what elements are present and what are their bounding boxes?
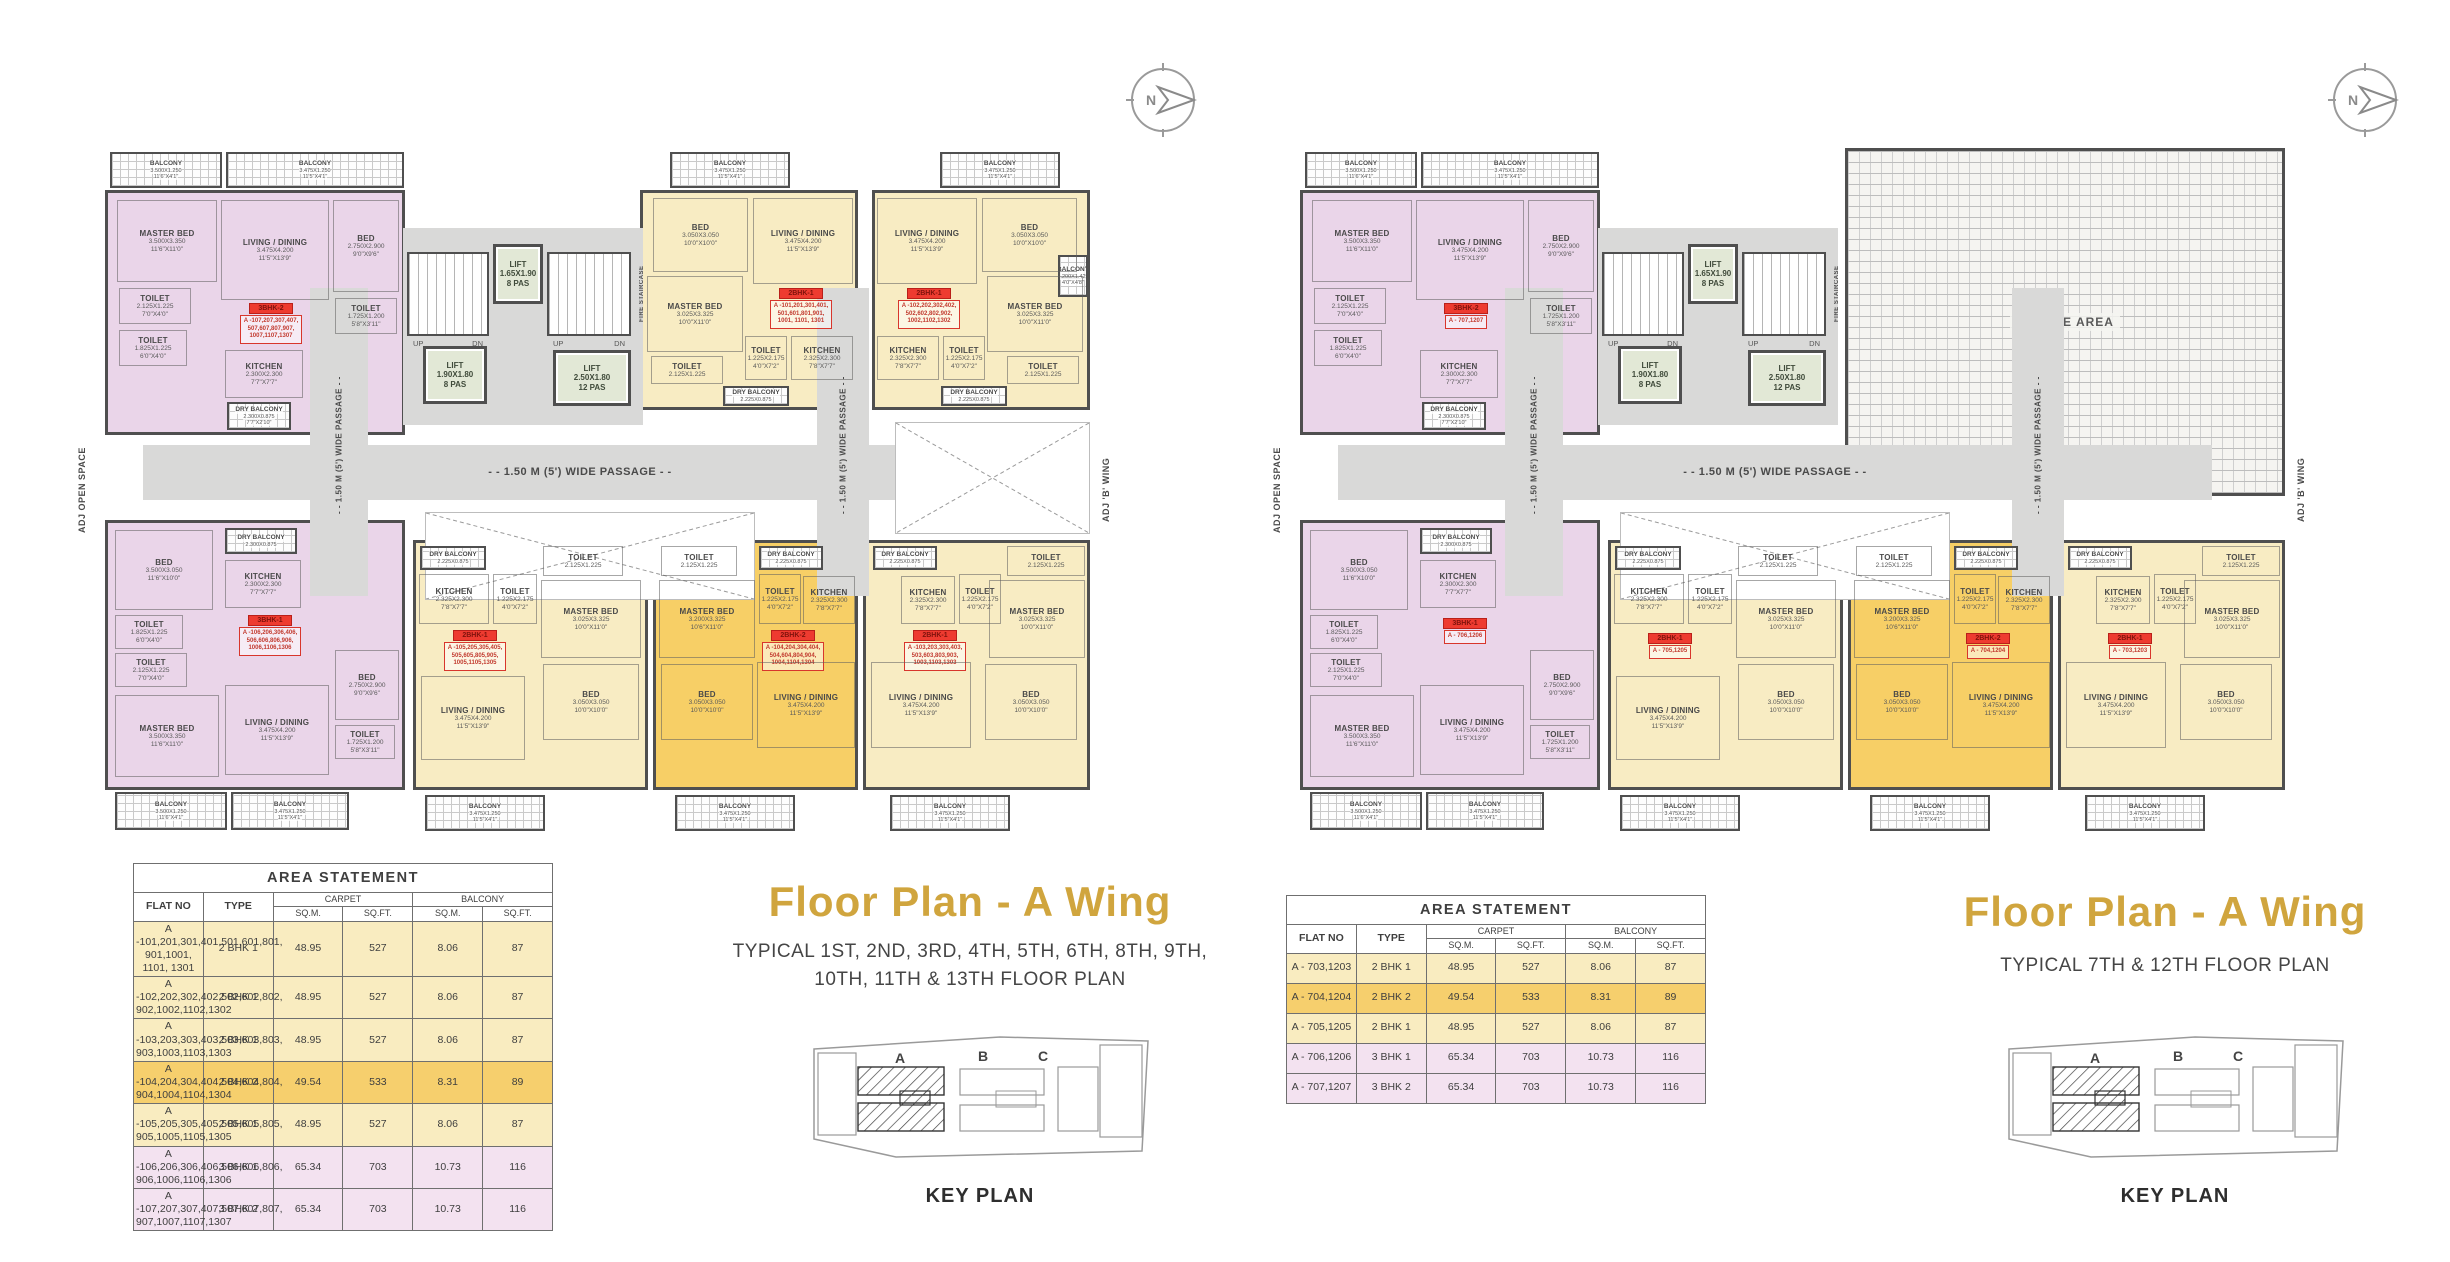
room-label: LIVING / DINING	[245, 718, 309, 727]
cell-flat-no: A -101,201,301,401,501,601,801, 901,1001…	[134, 921, 204, 977]
room-toilet: TOILET1.225X2.1754'0"X7'2"	[1954, 574, 1996, 624]
room-label: KITCHEN	[246, 362, 283, 371]
table-row: A -102,202,302,402,502,602,802, 902,1002…	[134, 977, 553, 1019]
lift-label: LIFT	[447, 361, 464, 371]
room-dims-ft: 10'0"X10'0"	[2209, 707, 2242, 714]
room-dims-ft: 7'8"X7'7"	[809, 363, 835, 370]
balcony-dims-ft: 11'5"X4'1"	[2133, 817, 2158, 823]
room-dims-m: 3.475X4.200	[1650, 715, 1687, 722]
room-dims-ft: 7'0"X4'0"	[142, 311, 168, 318]
area-statement-table: AREA STATEMENTFLAT NOTYPECARPETBALCONYSQ…	[133, 863, 553, 1231]
room-label: MASTER BED	[668, 302, 723, 311]
lift-capacity: 12 PAS	[579, 383, 606, 393]
balcony-label: DRY BALCONY	[1624, 551, 1671, 558]
svg-text:N: N	[2348, 92, 2358, 108]
cell-balcony-sqm: 8.31	[413, 1061, 483, 1103]
room-toilet: TOILET1.225X2.1754'0"X7'2"	[759, 574, 801, 624]
room-dims-m: 2.300X2.300	[245, 581, 282, 588]
cell-type: 2 BHK 2	[1356, 983, 1426, 1013]
room-dims-m: 2.125X1.225	[1025, 371, 1062, 378]
room-dims-ft: 11'5"X13'9"	[1454, 255, 1487, 262]
room-dims-m: 3.475X4.200	[257, 247, 294, 254]
lift-label: LIFT	[584, 364, 601, 374]
cell-flat-no: A - 703,1203	[1287, 953, 1357, 983]
room-living-dining: LIVING / DINING3.475X4.20011'5"X13'9"	[225, 685, 329, 775]
cell-balcony-sqft: 89	[483, 1061, 553, 1103]
room-label: LIVING / DINING	[895, 229, 959, 238]
balcony-dims-m: 2.225X0.875	[958, 397, 989, 403]
flat-numbers: A -105,205,305,405, 505,605,805,905, 100…	[444, 642, 507, 671]
table-row: A -105,205,305,405,505,605,805, 905,1005…	[134, 1104, 553, 1146]
room-kitchen: KITCHEN2.300X2.3007'7"X7'7"	[1420, 560, 1496, 608]
room-label: TOILET	[351, 304, 381, 313]
unit-type-chip: 2BHK-1	[779, 288, 822, 299]
room-dims-m: 2.125X1.225	[133, 667, 170, 674]
balcony-dims-m: 2.225X0.875	[1970, 559, 2001, 565]
room-dims-ft: 11'5"X13'9"	[261, 735, 294, 742]
balcony-label: DRY BALCONY	[950, 389, 997, 396]
cell-balcony-sqft: 87	[483, 977, 553, 1019]
lift-capacity: 8 PAS	[1639, 380, 1662, 390]
room-dims-m: 3.050X3.050	[1884, 699, 1921, 706]
hatch-balcony: BALCONY3.475X1.25011'5"X4'1"	[1421, 152, 1599, 188]
room-bed: BED3.050X3.05010'0"X10'0"	[1738, 664, 1834, 740]
table-title: AREA STATEMENT	[134, 864, 553, 893]
room-label: LIVING / DINING	[771, 229, 835, 238]
cell-carpet-sqm: 48.95	[273, 977, 343, 1019]
flat-numbers: A - 706,1206	[1444, 630, 1486, 644]
room-dims-ft: 11'5"X13'9"	[911, 246, 944, 253]
hatch-dry-balcony: DRY BALCONY2.225X0.875	[420, 546, 486, 570]
balcony-dims-ft: 11'6"X4'1"	[154, 174, 179, 180]
balcony-label: BALCONY	[274, 801, 306, 808]
cell-balcony-sqm: 8.06	[413, 1104, 483, 1146]
room-toilet: TOILET1.225X2.1754'0"X7'2"	[745, 336, 787, 380]
unit-type-chip: 2BHK-1	[913, 630, 956, 641]
hatch-balcony: BALCONY3.500X1.25011'6"X4'1"	[110, 152, 222, 188]
room-dims-ft: 10'0"X11'0"	[679, 319, 712, 326]
room-dims-ft: 4'0"X7'2"	[1697, 604, 1723, 611]
balcony-dims-m: 2.225X0.875	[2084, 559, 2115, 565]
room-label: BED	[692, 223, 710, 232]
room-toilet: TOILET1.225X2.1754'0"X7'2"	[493, 574, 537, 624]
cell-carpet-sqft: 703	[1496, 1043, 1566, 1073]
cell-flat-no: A -105,205,305,405,505,605,805, 905,1005…	[134, 1104, 204, 1146]
room-living-dining: LIVING / DINING3.475X4.20011'5"X13'9"	[1952, 662, 2050, 748]
room-label: BED	[698, 690, 716, 699]
hatch-dry-balcony: DRY BALCONY2.300X0.8757'7"X2'10"	[227, 402, 291, 430]
unit-type-chip: 3BHK-2	[1444, 303, 1487, 314]
room-bed: BED3.500X3.05011'6"X10'0"	[115, 530, 213, 610]
key-plan-letter-b: B	[2173, 1048, 2183, 1064]
room-dims-ft: 10'0"X10'0"	[1013, 240, 1046, 247]
hatch-dry-balcony: DRY BALCONY2.225X0.875	[2068, 546, 2132, 570]
room-dims-ft: 11'5"X13'9"	[1985, 710, 2018, 717]
room-dims-m: 3.050X3.050	[1768, 699, 1805, 706]
cell-balcony-sqft: 116	[483, 1188, 553, 1230]
balcony-dims-ft: 7'7"X2'10"	[247, 420, 272, 426]
room-toilet: TOILET2.125X1.225	[1856, 546, 1932, 576]
room-dims-ft: 6'0"X4'0"	[1331, 637, 1357, 644]
balcony-dims-ft: 11'5"X4'1"	[1498, 174, 1523, 180]
passage-label: ADJ 'B' WING	[1097, 390, 1115, 590]
room-label: BED	[1022, 690, 1040, 699]
room-label: KITCHEN	[245, 572, 282, 581]
cell-type: 3 BHK 1	[1356, 1043, 1426, 1073]
balcony-label: BALCONY	[469, 803, 501, 810]
staircase: UPDN	[1602, 252, 1684, 336]
col-sqft: SQ.FT.	[483, 907, 553, 921]
room-living-dining: LIVING / DINING3.475X4.20011'5"X13'9"	[877, 198, 977, 284]
room-label: MASTER BED	[2205, 607, 2260, 616]
passage-label: FIRE STAIRCASE	[1830, 248, 1844, 340]
red-2bhk-1: 2BHK-1A -105,205,305,405, 505,605,805,90…	[425, 630, 525, 672]
cell-carpet-sqm: 49.54	[1426, 983, 1496, 1013]
balcony-label: BALCONY	[299, 160, 331, 167]
cell-carpet-sqft: 527	[343, 1019, 413, 1061]
balcony-dims-ft: 11'6"X4'1"	[1354, 815, 1379, 821]
room-toilet: TOILET2.125X1.225	[543, 546, 623, 576]
room-label: KITCHEN	[1440, 572, 1477, 581]
room-toilet: TOILET1.725X1.2005'8"X3'11"	[1530, 725, 1590, 759]
lift-dims: 1.90X1.80	[437, 370, 473, 380]
balcony-label: BALCONY	[150, 160, 182, 167]
room-dims-ft: 4'0"X7'2"	[951, 363, 977, 370]
hatch-balcony: BALCONY3.475X1.25011'5"X4'1"	[1870, 795, 1990, 831]
balcony-dims-m: 2.300X0.875	[1440, 542, 1471, 548]
page-subtitle-right: TYPICAL 7TH & 12TH FLOOR PLAN	[1935, 952, 2395, 980]
room-dims-m: 2.125X1.225	[137, 303, 174, 310]
room-label: LIVING / DINING	[889, 693, 953, 702]
room-label: TOILET	[1879, 553, 1909, 562]
room-label: KITCHEN	[890, 346, 927, 355]
balcony-dims-m: 2.225X0.875	[775, 559, 806, 565]
room-dims-m: 1.225X2.175	[497, 596, 534, 603]
room-dims-ft: 10'0"X10'0"	[1885, 707, 1918, 714]
table-row: A -103,203,303,403,503,603,803, 903,1003…	[134, 1019, 553, 1061]
cell-carpet-sqft: 703	[343, 1146, 413, 1188]
room-dims-m: 2.750X2.900	[1543, 243, 1580, 250]
balcony-label: DRY BALCONY	[2076, 551, 2123, 558]
hatch-balcony: BALCONY3.475X1.25011'5"X4'1"	[940, 152, 1060, 188]
table-row: A -107,207,307,407,507,607,807, 907,1007…	[134, 1188, 553, 1230]
cell-balcony-sqft: 87	[1636, 953, 1706, 983]
room-dims-ft: 11'6"X11'0"	[1346, 741, 1378, 748]
lift-dims: 1.65X1.90	[1695, 269, 1731, 279]
room-kitchen: KITCHEN2.325X2.3007'8"X7'7"	[2096, 576, 2150, 624]
room-master-bed: MASTER BED3.200X3.32510'6"X11'0"	[1854, 580, 1950, 658]
lift-dims: 1.65X1.90	[500, 269, 536, 279]
flat-numbers: A -101,201,301,401, 501,601,801,901, 100…	[770, 300, 833, 329]
room-label: TOILET	[1546, 304, 1576, 313]
room-dims-ft: 10'6"X11'0"	[691, 624, 724, 631]
room-label: LIVING / DINING	[2084, 693, 2148, 702]
room-label: BED	[1777, 690, 1795, 699]
cell-carpet-sqft: 533	[343, 1061, 413, 1103]
flat-numbers: A - 703,1203	[2109, 645, 2151, 659]
room-dims-ft: 11'5"X13'9"	[2100, 710, 2133, 717]
hatch-dry-balcony: DRY BALCONY2.225X0.875	[1615, 546, 1681, 570]
cell-carpet-sqft: 703	[343, 1188, 413, 1230]
passage-label: - - 1.50 M (5') WIDE PASSAGE - -	[314, 300, 364, 590]
stair-dn-label: DN	[1809, 339, 1820, 348]
stair-up-label: UP	[1748, 339, 1758, 348]
cell-carpet-sqm: 65.34	[1426, 1073, 1496, 1103]
room-dims-m: 3.500X3.050	[1341, 567, 1378, 574]
room-toilet: TOILET2.125X1.225	[2202, 546, 2280, 576]
room-bed: BED3.050X3.05010'0"X10'0"	[2180, 664, 2272, 740]
cell-balcony-sqm: 8.06	[1566, 1013, 1636, 1043]
cell-carpet-sqm: 65.34	[273, 1146, 343, 1188]
room-master-bed: MASTER BED3.025X3.32510'0"X11'0"	[989, 580, 1085, 658]
cell-balcony-sqm: 8.06	[413, 1019, 483, 1061]
room-kitchen: KITCHEN2.300X2.3007'7"X7'7"	[1420, 350, 1498, 398]
cell-balcony-sqft: 87	[483, 921, 553, 977]
col-sqm: SQ.M.	[1566, 939, 1636, 953]
room-label: MASTER BED	[1875, 607, 1930, 616]
floor-plan-right: REFUGE AREAUPDNUPDNLIFT1.65X1.908 PASLIF…	[1290, 140, 2320, 850]
room-dims-m: 1.225X2.175	[748, 355, 785, 362]
room-label: BED	[1552, 234, 1570, 243]
room-dims-m: 1.825X1.225	[131, 629, 168, 636]
room-living-dining: LIVING / DINING3.475X4.20011'5"X13'9"	[1616, 676, 1720, 760]
room-dims-m: 3.500X3.350	[149, 238, 186, 245]
cell-balcony-sqm: 8.31	[1566, 983, 1636, 1013]
balcony-dims-ft: 11'5"X4'1"	[938, 817, 963, 823]
room-master-bed: MASTER BED3.500X3.35011'6"X11'0"	[1310, 695, 1414, 777]
room-toilet: TOILET2.125X1.2257'0"X4'0"	[119, 288, 191, 324]
room-label: KITCHEN	[2006, 588, 2043, 597]
room-dims-ft: 11'5"X13'9"	[1652, 723, 1685, 730]
room-toilet: TOILET1.225X2.1754'0"X7'2"	[943, 336, 985, 380]
room-bed: BED2.750X2.9009'0"X9'6"	[335, 650, 399, 720]
room-master-bed: MASTER BED3.025X3.32510'0"X11'0"	[2184, 580, 2280, 658]
cell-carpet-sqm: 48.95	[1426, 953, 1496, 983]
room-dims-m: 3.050X3.050	[682, 232, 719, 239]
red-3bhk-1: 3BHK-1A - 706,1206	[1414, 618, 1516, 652]
room-dims-m: 2.750X2.900	[349, 682, 386, 689]
room-dims-m: 1.825X1.225	[135, 345, 172, 352]
hatch-balcony: BALCONY3.475X1.25011'5"X4'1"	[231, 792, 349, 830]
room-dims-m: 3.025X3.325	[2214, 616, 2251, 623]
room-label: LIVING / DINING	[1438, 238, 1502, 247]
room-label: MASTER BED	[140, 724, 195, 733]
cell-balcony-sqft: 87	[1636, 1013, 1706, 1043]
flat-numbers: A - 707,1207	[1445, 315, 1487, 329]
key-plan-label-right: KEY PLAN	[1995, 1185, 2355, 1208]
room-dims-m: 3.500X3.350	[1344, 238, 1381, 245]
room-label: LIVING / DINING	[774, 693, 838, 702]
page-title-left: Floor Plan - A Wing	[740, 878, 1200, 926]
room-kitchen: KITCHEN2.325X2.3007'8"X7'7"	[1998, 576, 2050, 624]
room-label: LIVING / DINING	[1969, 693, 2033, 702]
room-kitchen: KITCHEN2.325X2.3007'8"X7'7"	[1614, 574, 1684, 624]
room-dims-m: 2.125X1.225	[1876, 562, 1913, 569]
red-2bhk-1: 2BHK-1A -101,201,301,401, 501,601,801,90…	[750, 288, 852, 332]
room-dims-m: 1.725X1.200	[347, 739, 384, 746]
unit-type-chip: 2BHK-1	[2108, 633, 2151, 644]
lift-capacity: 12 PAS	[1774, 383, 1801, 393]
room-living-dining: LIVING / DINING3.475X4.20011'5"X13'9"	[2066, 662, 2166, 748]
room-dims-m: 3.050X3.050	[689, 699, 726, 706]
hatch-balcony: BALCONY3.475X1.25011'5"X4'1"	[1620, 795, 1740, 831]
balcony-dims-ft: 11'5"X4'1"	[723, 817, 748, 823]
room-dims-ft: 11'5"X13'9"	[790, 710, 823, 717]
room-kitchen: KITCHEN2.300X2.3007'7"X7'7"	[225, 350, 303, 398]
room-dims-m: 3.475X4.200	[788, 702, 825, 709]
balcony-dims-ft: 11'5"X4'1"	[718, 174, 743, 180]
cell-balcony-sqm: 8.06	[413, 977, 483, 1019]
room-dims-m: 3.475X4.200	[1983, 702, 2020, 709]
balcony-label: DRY BALCONY	[881, 551, 928, 558]
room-kitchen: KITCHEN2.325X2.3007'8"X7'7"	[791, 336, 853, 380]
room-toilet: TOILET2.125X1.225	[661, 546, 737, 576]
table-row: A - 707,12073 BHK 265.3470310.73116	[1287, 1073, 1706, 1103]
room-label: TOILET	[1695, 587, 1725, 596]
cell-flat-no: A -103,203,303,403,503,603,803, 903,1003…	[134, 1019, 204, 1061]
col-type: TYPE	[1356, 925, 1426, 954]
room-dims-ft: 7'8"X7'7"	[895, 363, 921, 370]
cell-carpet-sqft: 533	[1496, 983, 1566, 1013]
room-dims-m: 3.475X4.200	[1452, 247, 1489, 254]
room-label: KITCHEN	[811, 588, 848, 597]
stair-up-label: UP	[1608, 339, 1618, 348]
room-label: TOILET	[1329, 620, 1359, 629]
room-dims-m: 3.025X3.325	[677, 311, 714, 318]
room-dims-ft: 11'6"X11'0"	[151, 246, 183, 253]
room-label: BED	[2217, 690, 2235, 699]
room-dims-ft: 7'7"X7'7"	[1445, 589, 1471, 596]
room-dims-ft: 9'0"X9'6"	[353, 251, 379, 258]
col-carpet: CARPET	[273, 893, 413, 907]
cell-balcony-sqft: 116	[1636, 1073, 1706, 1103]
staircase: UPDN	[547, 252, 631, 336]
room-bed: BED2.750X2.9009'0"X9'6"	[1530, 650, 1594, 720]
room-label: TOILET	[500, 587, 530, 596]
room-dims-m: 2.125X1.225	[669, 371, 706, 378]
lift: LIFT1.90X1.808 PAS	[423, 346, 487, 404]
room-dims-m: 3.475X4.200	[2098, 702, 2135, 709]
cell-flat-no: A - 705,1205	[1287, 1013, 1357, 1043]
hatch-dry-balcony: DRY BALCONY2.300X0.8757'7"X2'10"	[1422, 402, 1486, 430]
room-toilet: TOILET2.125X1.2257'0"X4'0"	[1310, 653, 1382, 687]
room-dims-m: 1.725X1.200	[1542, 739, 1579, 746]
cell-balcony-sqm: 10.73	[413, 1146, 483, 1188]
room-toilet: TOILET1.825X1.2256'0"X4'0"	[1310, 615, 1378, 649]
room-label: TOILET	[140, 294, 170, 303]
room-label: KITCHEN	[1631, 587, 1668, 596]
room-dims-ft: 7'0"X4'0"	[1337, 311, 1363, 318]
room-dims-ft: 10'6"X11'0"	[1886, 624, 1919, 631]
room-label: MASTER BED	[1335, 724, 1390, 733]
room-dims-ft: 10'0"X10'0"	[684, 240, 717, 247]
flat-numbers: A -106,206,306,406, 506,606,806,906, 100…	[239, 627, 302, 656]
room-toilet: TOILET2.125X1.2257'0"X4'0"	[115, 653, 187, 687]
room-dims-ft: 9'0"X9'6"	[354, 690, 380, 697]
room-toilet: TOILET2.125X1.225	[1007, 356, 1079, 384]
cell-flat-no: A - 704,1204	[1287, 983, 1357, 1013]
key-plan-wing-a	[858, 1067, 944, 1131]
room-label: TOILET	[1331, 658, 1361, 667]
balcony-label: DRY BALCONY	[1962, 551, 2009, 558]
room-dims-m: 3.475X4.200	[909, 238, 946, 245]
room-toilet: TOILET1.825X1.2256'0"X4'0"	[1314, 330, 1382, 366]
cell-balcony-sqm: 8.06	[413, 921, 483, 977]
balcony-dims-ft: 11'6"X4'1"	[1349, 174, 1374, 180]
room-dims-m: 2.300X2.300	[246, 371, 283, 378]
cell-balcony-sqm: 8.06	[1566, 953, 1636, 983]
lift-capacity: 8 PAS	[444, 380, 467, 390]
balcony-label: BALCONY	[714, 160, 746, 167]
room-dims-ft: 9'0"X9'6"	[1548, 251, 1574, 258]
lift: LIFT2.50X1.8012 PAS	[553, 350, 631, 406]
flat-numbers: A - 704,1204	[1967, 645, 2009, 659]
room-master-bed: MASTER BED3.500X3.35011'6"X11'0"	[115, 695, 219, 777]
balcony-label: BALCONY	[1345, 160, 1377, 167]
room-dims-m: 2.325X2.300	[436, 596, 473, 603]
staircase: UPDN	[1742, 252, 1826, 336]
hatch-dry-balcony: DRY BALCONY2.300X0.875	[225, 528, 297, 554]
room-dims-m: 2.125X1.225	[681, 562, 718, 569]
lift-dims: 2.50X1.80	[1769, 373, 1805, 383]
room-dims-ft: 10'0"X11'0"	[2216, 624, 2249, 631]
key-plan-wing-c	[2253, 1067, 2293, 1131]
unit-type-chip: 3BHK-1	[1443, 618, 1486, 629]
room-dims-m: 1.825X1.225	[1326, 629, 1363, 636]
room-label: MASTER BED	[564, 607, 619, 616]
passage-label: - - 1.50 M (5') WIDE PASSAGE - -	[2013, 300, 2063, 590]
room-dims-m: 2.325X2.300	[890, 355, 927, 362]
balcony-label: BALCONY	[1914, 803, 1946, 810]
room-kitchen: KITCHEN2.300X2.3007'7"X7'7"	[225, 560, 301, 608]
key-plan-wing-c	[1058, 1067, 1098, 1131]
cell-carpet-sqft: 527	[343, 977, 413, 1019]
hatch-dry-balcony: DRY BALCONY2.225X0.875	[759, 546, 823, 570]
room-label: BED	[1021, 223, 1039, 232]
room-dims-ft: 7'7"X7'7"	[250, 589, 276, 596]
page-title-right: Floor Plan - A Wing	[1935, 888, 2395, 936]
room-label: BED	[357, 234, 375, 243]
room-dims-ft: 7'0"X4'0"	[138, 675, 164, 682]
north-arrow-icon: N	[2320, 55, 2410, 145]
room-dims-m: 3.500X3.050	[146, 567, 183, 574]
room-label: MASTER BED	[1759, 607, 1814, 616]
passage-label: - - 1.50 M (5') WIDE PASSAGE - -	[1520, 460, 2030, 484]
col-sqm: SQ.M.	[273, 907, 343, 921]
room-label: TOILET	[1028, 362, 1058, 371]
col-sqft: SQ.FT.	[1636, 939, 1706, 953]
cell-carpet-sqft: 527	[1496, 1013, 1566, 1043]
room-dims-ft: 7'8"X7'7"	[816, 605, 842, 612]
red-3bhk-1: 3BHK-1A -106,206,306,406, 506,606,806,90…	[219, 615, 321, 659]
cell-carpet-sqft: 527	[343, 921, 413, 977]
balcony-label: DRY BALCONY	[732, 389, 779, 396]
room-label: KITCHEN	[2105, 588, 2142, 597]
balcony-label: DRY BALCONY	[1430, 406, 1477, 413]
room-bed: BED3.050X3.05010'0"X10'0"	[1856, 664, 1948, 740]
lift: LIFT2.50X1.8012 PAS	[1748, 350, 1826, 406]
floor-plan-left: UPDNUPDNLIFT1.65X1.908 PASLIFT1.90X1.808…	[95, 140, 1125, 850]
balcony-dims-m: 2.225X0.875	[437, 559, 468, 565]
cell-type: 2 BHK 1	[1356, 953, 1426, 983]
room-dims-m: 2.125X1.225	[1332, 303, 1369, 310]
passage-label: ADJ OPEN SPACE	[73, 390, 91, 590]
hatch-balcony: BALCONY3.475X1.25011'5"X4'1"	[670, 152, 790, 188]
balcony-label: BALCONY	[1469, 801, 1501, 808]
hatch-balcony: BALCONY3.500X1.25011'6"X4'1"	[1310, 792, 1422, 830]
north-label: N	[1146, 92, 1156, 108]
room-living-dining: LIVING / DINING3.475X4.20011'5"X13'9"	[421, 676, 525, 760]
